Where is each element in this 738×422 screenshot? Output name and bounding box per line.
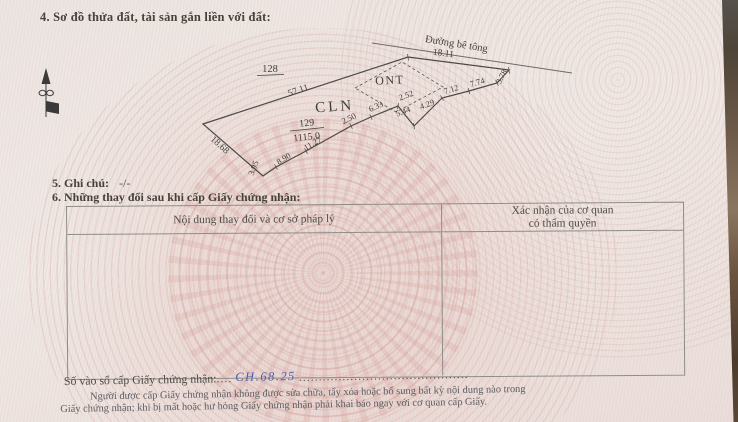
changes-table-col1-header: Nội dung thay đổi và cơ sở pháp lý xyxy=(67,204,442,234)
changes-table-col1-cell xyxy=(67,232,443,378)
section4-title: 4. Sơ đồ thửa đất, tài sản gắn liền với … xyxy=(40,10,271,25)
serial-handwritten-value: CH.68.25 xyxy=(235,369,296,384)
serial-label: Số vào sổ cấp Giấy chứng nhận: xyxy=(64,371,217,388)
section5-value: -/- xyxy=(119,176,130,190)
serial-dots-after: ........................................… xyxy=(299,367,469,384)
section5-label: 5. Ghi chú: xyxy=(52,176,109,190)
col2-header-line1: Xác nhận của cơ quan xyxy=(512,204,614,218)
changes-table-col2-header: Xác nhận của cơ quan có thẩm quyền xyxy=(442,203,683,232)
serial-dots-before: .... xyxy=(216,371,232,385)
changes-table-body-row xyxy=(67,231,684,378)
section5-line: 5. Ghi chú:-/- xyxy=(52,176,130,191)
section6-title: 6. Những thay đổi sau khi cấp Giấy chứng… xyxy=(52,190,300,205)
certificate-page: 4. Sơ đồ thửa đất, tài sản gắn liền với … xyxy=(0,0,738,422)
changes-table: Nội dung thay đổi và cơ sở pháp lý Xác n… xyxy=(66,202,685,380)
col2-header-line2: có thẩm quyền xyxy=(529,217,597,230)
changes-table-header-row: Nội dung thay đổi và cơ sở pháp lý Xác n… xyxy=(67,203,683,235)
changes-table-col2-cell xyxy=(442,231,684,376)
